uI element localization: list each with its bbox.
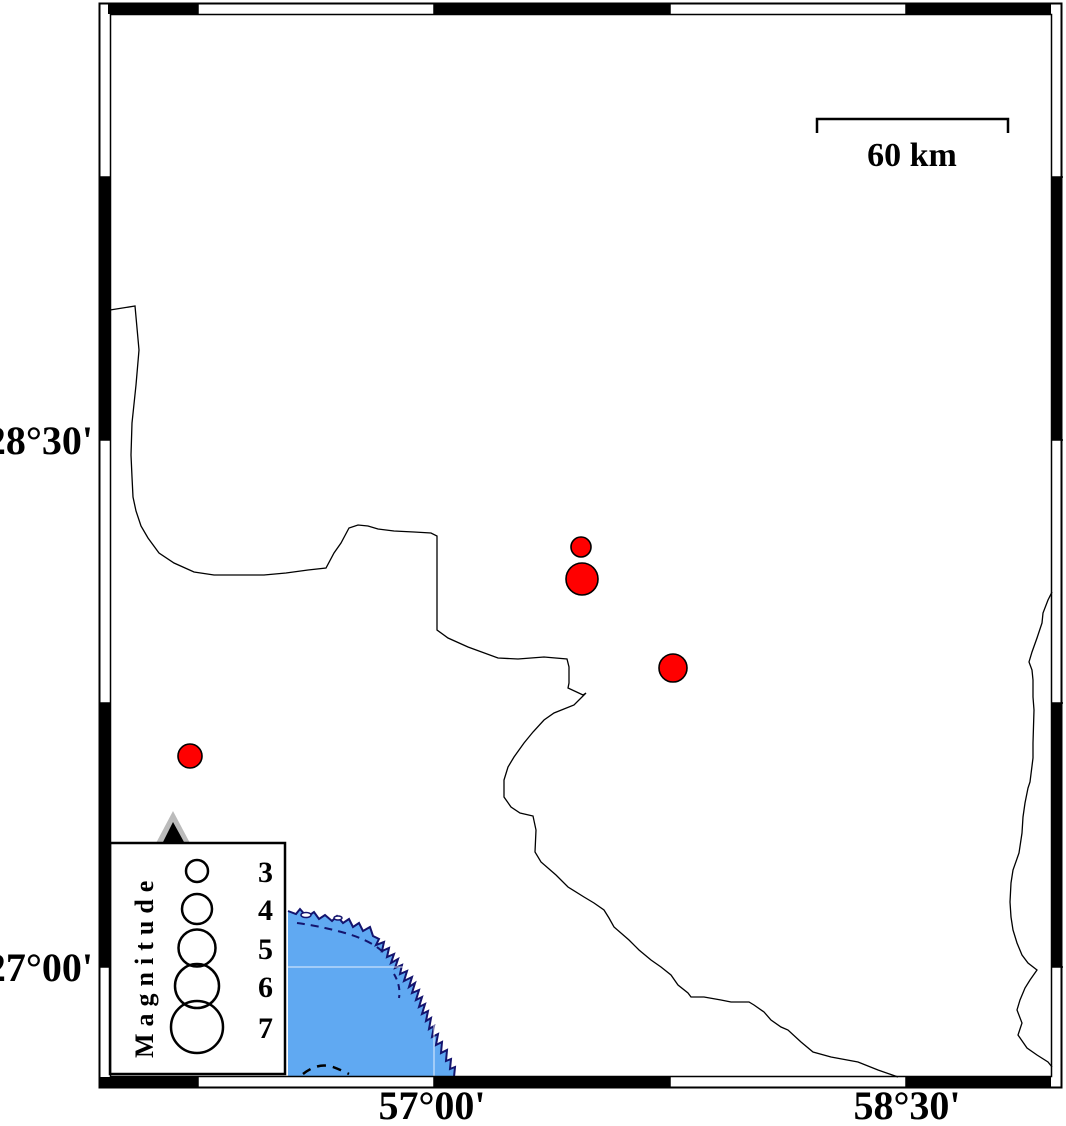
epicenter-marker <box>566 563 598 595</box>
lat-label-2830: 28°30' <box>0 418 93 463</box>
legend-title: Magnitude <box>130 874 159 1058</box>
legend-magnitude-label: 6 <box>258 971 273 1004</box>
islet <box>334 916 342 920</box>
scale-bar-label: 60 km <box>867 137 957 174</box>
seismicity-map: 60 km Magnitude 34567 <box>0 0 1066 1126</box>
lon-label-5700: 57°00' <box>378 1083 485 1126</box>
lon-label-5830: 58°30' <box>853 1083 960 1126</box>
map-canvas: 60 km Magnitude 34567 <box>0 0 1066 1126</box>
legend-magnitude-label: 4 <box>258 894 273 927</box>
epicenter-marker <box>571 537 591 557</box>
frame-segment <box>100 177 110 440</box>
lat-label-2700: 27°00' <box>0 945 93 990</box>
epicenter-marker <box>659 654 687 682</box>
legend-magnitude-label: 7 <box>258 1012 273 1045</box>
legend-magnitude-label: 3 <box>258 856 273 889</box>
frame-segment <box>100 1077 198 1087</box>
frame-segment <box>434 4 670 14</box>
frame-segment <box>100 703 110 967</box>
frame-segment <box>108 4 198 14</box>
epicenter-marker <box>178 744 202 768</box>
magnitude-legend: Magnitude 34567 <box>110 843 285 1074</box>
frame-segment <box>906 4 1051 14</box>
legend-magnitude-label: 5 <box>258 933 273 966</box>
islet <box>301 913 311 918</box>
